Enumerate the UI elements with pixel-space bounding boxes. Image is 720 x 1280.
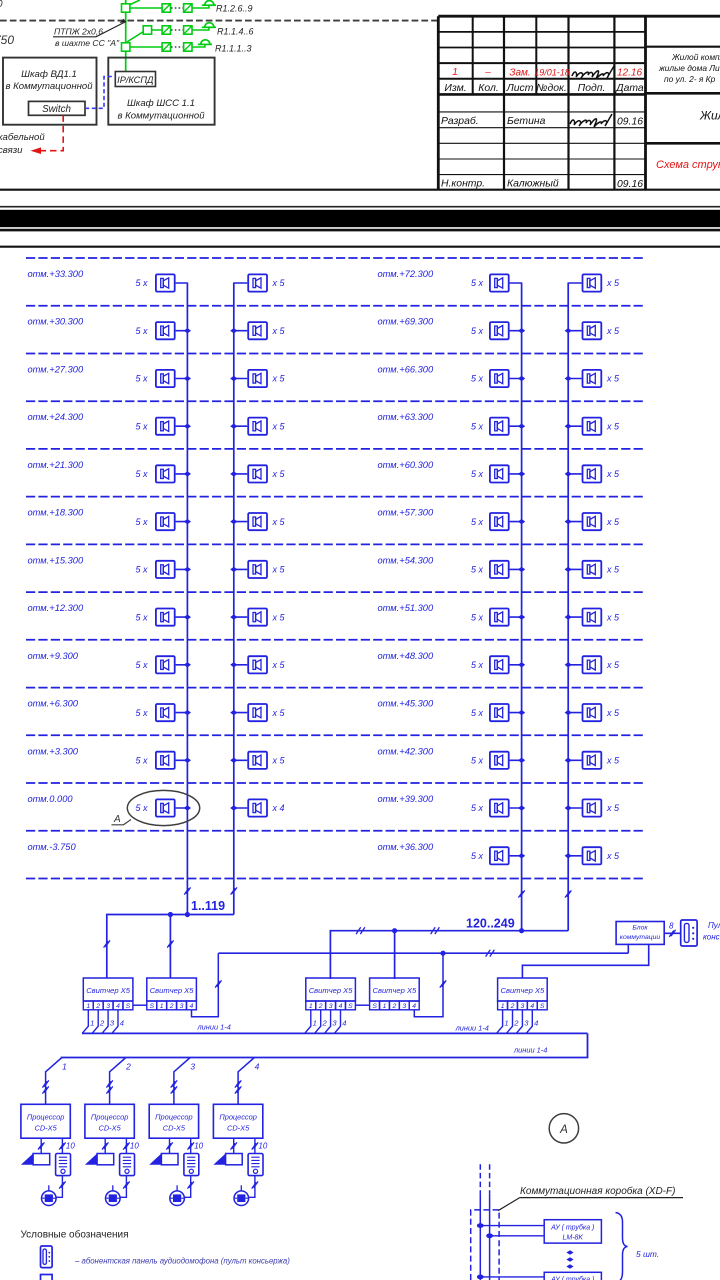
svg-text:3: 3 [180,1003,184,1010]
svg-text:х 5: х 5 [606,374,620,384]
svg-text:Пульт: Пульт [708,921,720,930]
svg-text:Кол.: Кол. [478,83,498,94]
svg-text:отм.+33.300: отм.+33.300 [28,269,84,279]
svg-text:х 5: х 5 [606,326,620,336]
svg-text:5 х: 5 х [471,421,484,431]
svg-text:Коммутационная коробка (XD-F): Коммутационная коробка (XD-F) [520,1185,675,1197]
svg-text:1: 1 [160,1003,164,1010]
svg-text:АУ ( трубка ): АУ ( трубка ) [550,1224,594,1232]
svg-text:в Коммутационной: в Коммутационной [117,111,205,122]
svg-text:IP/КСПД: IP/КСПД [117,75,154,85]
svg-text:2: 2 [318,1003,323,1010]
svg-text:1: 1 [383,1003,387,1010]
svg-text:4: 4 [412,1003,416,1010]
svg-text:3: 3 [106,1003,110,1010]
svg-text:отм.+54.300: отм.+54.300 [378,555,434,565]
svg-text:отм.+66.300: отм.+66.300 [378,365,434,375]
svg-text:– абонентская панель аудиодом: – абонентская панель аудиодомофона (пуль… [74,1257,290,1266]
svg-text:19/01-18: 19/01-18 [534,68,570,78]
svg-text:5 х: 5 х [471,851,484,861]
svg-text:1: 1 [452,67,458,78]
svg-text:Разраб.: Разраб. [441,115,479,127]
svg-text:750: 750 [0,33,14,47]
svg-text:5 х: 5 х [471,565,484,575]
svg-text:Процессор: Процессор [27,1113,64,1122]
svg-text:09.16: 09.16 [617,179,643,190]
svg-text:CD-Х5: CD-Х5 [163,1124,186,1133]
svg-text:отм.+27.300: отм.+27.300 [28,365,84,375]
svg-text:4: 4 [339,1003,343,1010]
svg-text:х 5: х 5 [606,612,620,622]
svg-text:отм.+42.300: отм.+42.300 [378,746,434,756]
svg-text:АУ ( трубка ): АУ ( трубка ) [550,1276,594,1280]
svg-text:1..119: 1..119 [191,899,225,913]
svg-text:Свитчер Х5: Свитчер Х5 [373,986,418,995]
svg-text:5 х: 5 х [135,803,148,813]
svg-text:ПТПЖ 2х0,6: ПТПЖ 2х0,6 [54,27,103,37]
svg-text:отм.+21.300: отм.+21.300 [28,460,84,470]
svg-text:8: 8 [669,922,674,931]
svg-text:х 5: х 5 [272,278,286,288]
svg-text:R1.2.6..9: R1.2.6..9 [216,4,253,14]
svg-text:Условные обозначения: Условные обозначения [21,1229,129,1241]
svg-text:CD-Х5: CD-Х5 [99,1124,122,1133]
svg-text:5 х: 5 х [135,612,148,622]
svg-text:х 5: х 5 [606,565,620,575]
svg-text:5 х: 5 х [135,421,148,431]
svg-text:Жил: Жил [699,109,720,123]
svg-text:5 х: 5 х [471,708,484,718]
svg-text:1: 1 [501,1003,505,1010]
svg-text:Калюжный: Калюжный [507,179,559,190]
svg-text:4: 4 [534,1019,538,1028]
svg-text:отм.+6.300: отм.+6.300 [28,699,79,709]
svg-text:связи: связи [0,145,23,156]
svg-text:S: S [372,1003,377,1010]
svg-text:CD-Х5: CD-Х5 [227,1124,250,1133]
svg-text:5 х: 5 х [471,660,484,670]
svg-text:5 х: 5 х [135,374,148,384]
svg-text:R1.1.4..6: R1.1.4..6 [217,27,254,37]
svg-text:Свитчер Х5: Свитчер Х5 [86,986,131,995]
svg-text:R1.1.1..3: R1.1.1..3 [215,44,252,54]
svg-text:отм.+30.300: отм.+30.300 [28,317,84,327]
svg-text:Свитчер Х5: Свитчер Х5 [309,986,354,995]
svg-text:1: 1 [313,1019,317,1028]
svg-text:120..249: 120..249 [466,917,515,931]
svg-text:4: 4 [116,1003,120,1010]
svg-text:А: А [113,814,121,825]
svg-text:отм.+9.300: отм.+9.300 [28,651,79,661]
svg-text:х 5: х 5 [606,517,620,527]
svg-text:3: 3 [329,1003,333,1010]
svg-text:3: 3 [110,1019,115,1028]
svg-text:отм.+18.300: отм.+18.300 [28,508,84,518]
svg-text:5 х: 5 х [135,278,148,288]
svg-text:отм.+72.300: отм.+72.300 [378,269,434,279]
svg-text:х 5: х 5 [272,756,286,766]
svg-text:5 х: 5 х [471,374,484,384]
svg-text:2: 2 [125,1062,131,1072]
svg-text:х 5: х 5 [606,708,620,718]
svg-text:Шкаф ШСС 1.1: Шкаф ШСС 1.1 [127,98,195,109]
svg-text:отм.+69.300: отм.+69.300 [378,317,434,327]
svg-text:S: S [348,1003,353,1010]
svg-text:4: 4 [120,1019,124,1028]
svg-text:Блок: Блок [632,925,648,932]
svg-text:5 х: 5 х [135,756,148,766]
svg-text:CD-Х5: CD-Х5 [35,1124,58,1133]
svg-text:5 х: 5 х [471,278,484,288]
svg-text:линии 1-4: линии 1-4 [197,1023,231,1032]
svg-text:х 5: х 5 [272,374,286,384]
svg-text:отм.+3.300: отм.+3.300 [28,746,79,756]
svg-text:Н.контр.: Н.контр. [441,179,485,190]
svg-text:5 х: 5 х [135,708,148,718]
svg-text:5 х: 5 х [135,565,148,575]
svg-text:А: А [559,1124,568,1136]
svg-text:5 шт.: 5 шт. [636,1249,659,1259]
svg-text:х 5: х 5 [606,278,620,288]
svg-text:отм.0.000: отм.0.000 [28,794,74,804]
svg-text:3: 3 [524,1019,529,1028]
svg-text:1: 1 [62,1062,67,1072]
svg-text:5 х: 5 х [471,469,484,479]
svg-text:по ул. 2- я Кр: по ул. 2- я Кр [664,74,716,84]
svg-text:отм.+24.300: отм.+24.300 [28,412,84,422]
svg-text:отм.+45.300: отм.+45.300 [378,699,434,709]
svg-text:2: 2 [510,1003,515,1010]
svg-text:х 5: х 5 [272,565,286,575]
svg-text:09.16: 09.16 [617,117,643,128]
svg-text:в шахте СС "А": в шахте СС "А" [55,38,120,48]
svg-text:х 5: х 5 [606,756,620,766]
svg-text:5 х: 5 х [471,612,484,622]
svg-text:линии 1-4: линии 1-4 [455,1024,489,1033]
svg-text:3: 3 [521,1003,525,1010]
svg-text:Switch: Switch [42,104,71,115]
svg-text:2: 2 [513,1019,519,1028]
svg-text:отм.+63.300: отм.+63.300 [378,412,434,422]
svg-text:S: S [540,1003,545,1010]
svg-text:5 х: 5 х [471,326,484,336]
svg-text:коммутации: коммутации [620,934,661,941]
svg-text:4: 4 [255,1062,260,1072]
svg-text:отм.+36.300: отм.+36.300 [378,842,434,852]
svg-text:Бетина: Бетина [507,116,546,127]
svg-text:2: 2 [392,1003,397,1010]
svg-text:1: 1 [309,1003,313,1010]
svg-text:х 5: х 5 [606,421,620,431]
svg-text:Зам.: Зам. [509,68,530,79]
svg-text:1: 1 [90,1019,94,1028]
svg-text:х 5: х 5 [272,421,286,431]
svg-text:Свитчер Х5: Свитчер Х5 [150,986,195,995]
svg-text:3: 3 [402,1003,406,1010]
svg-text:1: 1 [86,1003,90,1010]
svg-text:S: S [126,1003,131,1010]
svg-text:0: 0 [0,0,3,10]
svg-text:отм.+12.300: отм.+12.300 [28,603,84,613]
svg-text:Подп.: Подп. [578,83,606,94]
svg-text:Изм.: Изм. [444,83,466,94]
svg-text:отм.+51.300: отм.+51.300 [378,603,434,613]
svg-text:х 5: х 5 [272,469,286,479]
svg-text:х 5: х 5 [606,469,620,479]
svg-text:5 х: 5 х [471,803,484,813]
svg-text:1: 1 [504,1019,508,1028]
svg-text:консье: консье [703,933,720,942]
svg-text:2: 2 [95,1003,100,1010]
svg-text:3: 3 [190,1062,195,1072]
svg-text:5 х: 5 х [471,756,484,766]
svg-text:Свитчер Х5: Свитчер Х5 [501,986,546,995]
svg-text:5 х: 5 х [135,517,148,527]
svg-text:Процессор: Процессор [219,1113,256,1122]
svg-text:отм.+15.300: отм.+15.300 [28,555,84,565]
svg-text:отм.+39.300: отм.+39.300 [378,794,434,804]
svg-text:3: 3 [332,1019,337,1028]
svg-text:х 5: х 5 [606,803,620,813]
svg-text:х 5: х 5 [606,660,620,670]
svg-text:жилые дома Ли: жилые дома Ли [658,63,720,73]
svg-text:4: 4 [530,1003,534,1010]
svg-text:–: – [484,67,491,78]
svg-text:х 4: х 4 [272,803,285,813]
svg-text:2: 2 [99,1019,105,1028]
svg-text:х 5: х 5 [272,612,286,622]
svg-text:Схема структ: Схема структ [656,159,720,171]
svg-text:Процессор: Процессор [91,1113,128,1122]
svg-text:4: 4 [190,1003,194,1010]
svg-text:10: 10 [194,1142,203,1151]
svg-text:10: 10 [258,1142,267,1151]
svg-text:х 5: х 5 [272,708,286,718]
svg-text:2: 2 [169,1003,174,1010]
svg-text:5 х: 5 х [135,660,148,670]
svg-text:2: 2 [322,1019,328,1028]
svg-text:S: S [150,1003,155,1010]
svg-text:Процессор: Процессор [155,1113,192,1122]
svg-text:10: 10 [66,1142,75,1151]
svg-text:№док.: №док. [536,83,567,94]
svg-text:отм.+48.300: отм.+48.300 [378,651,434,661]
svg-text:5 х: 5 х [135,469,148,479]
svg-text:Жилой компл: Жилой компл [671,52,720,62]
svg-text:отм.+57.300: отм.+57.300 [378,508,434,518]
svg-text:5 х: 5 х [135,326,148,336]
svg-text:кабельной: кабельной [0,132,45,143]
svg-text:Шкаф ВД1.1: Шкаф ВД1.1 [21,69,77,80]
svg-text:х 5: х 5 [272,660,286,670]
svg-text:в Коммутационной: в Коммутационной [5,81,93,92]
svg-text:Дата: Дата [615,83,644,94]
svg-text:отм.+60.300: отм.+60.300 [378,460,434,470]
svg-text:4: 4 [342,1019,346,1028]
svg-text:Лист: Лист [506,83,534,94]
svg-text:х 5: х 5 [272,326,286,336]
svg-text:отм.-3.750: отм.-3.750 [28,842,77,852]
svg-text:линии 1-4: линии 1-4 [513,1046,547,1055]
svg-text:х 5: х 5 [272,517,286,527]
svg-text:5 х: 5 х [471,517,484,527]
svg-text:х 5: х 5 [606,851,620,861]
svg-text:12.16: 12.16 [617,68,642,79]
svg-text:LM-8K: LM-8K [562,1235,583,1242]
svg-text:10: 10 [130,1142,139,1151]
